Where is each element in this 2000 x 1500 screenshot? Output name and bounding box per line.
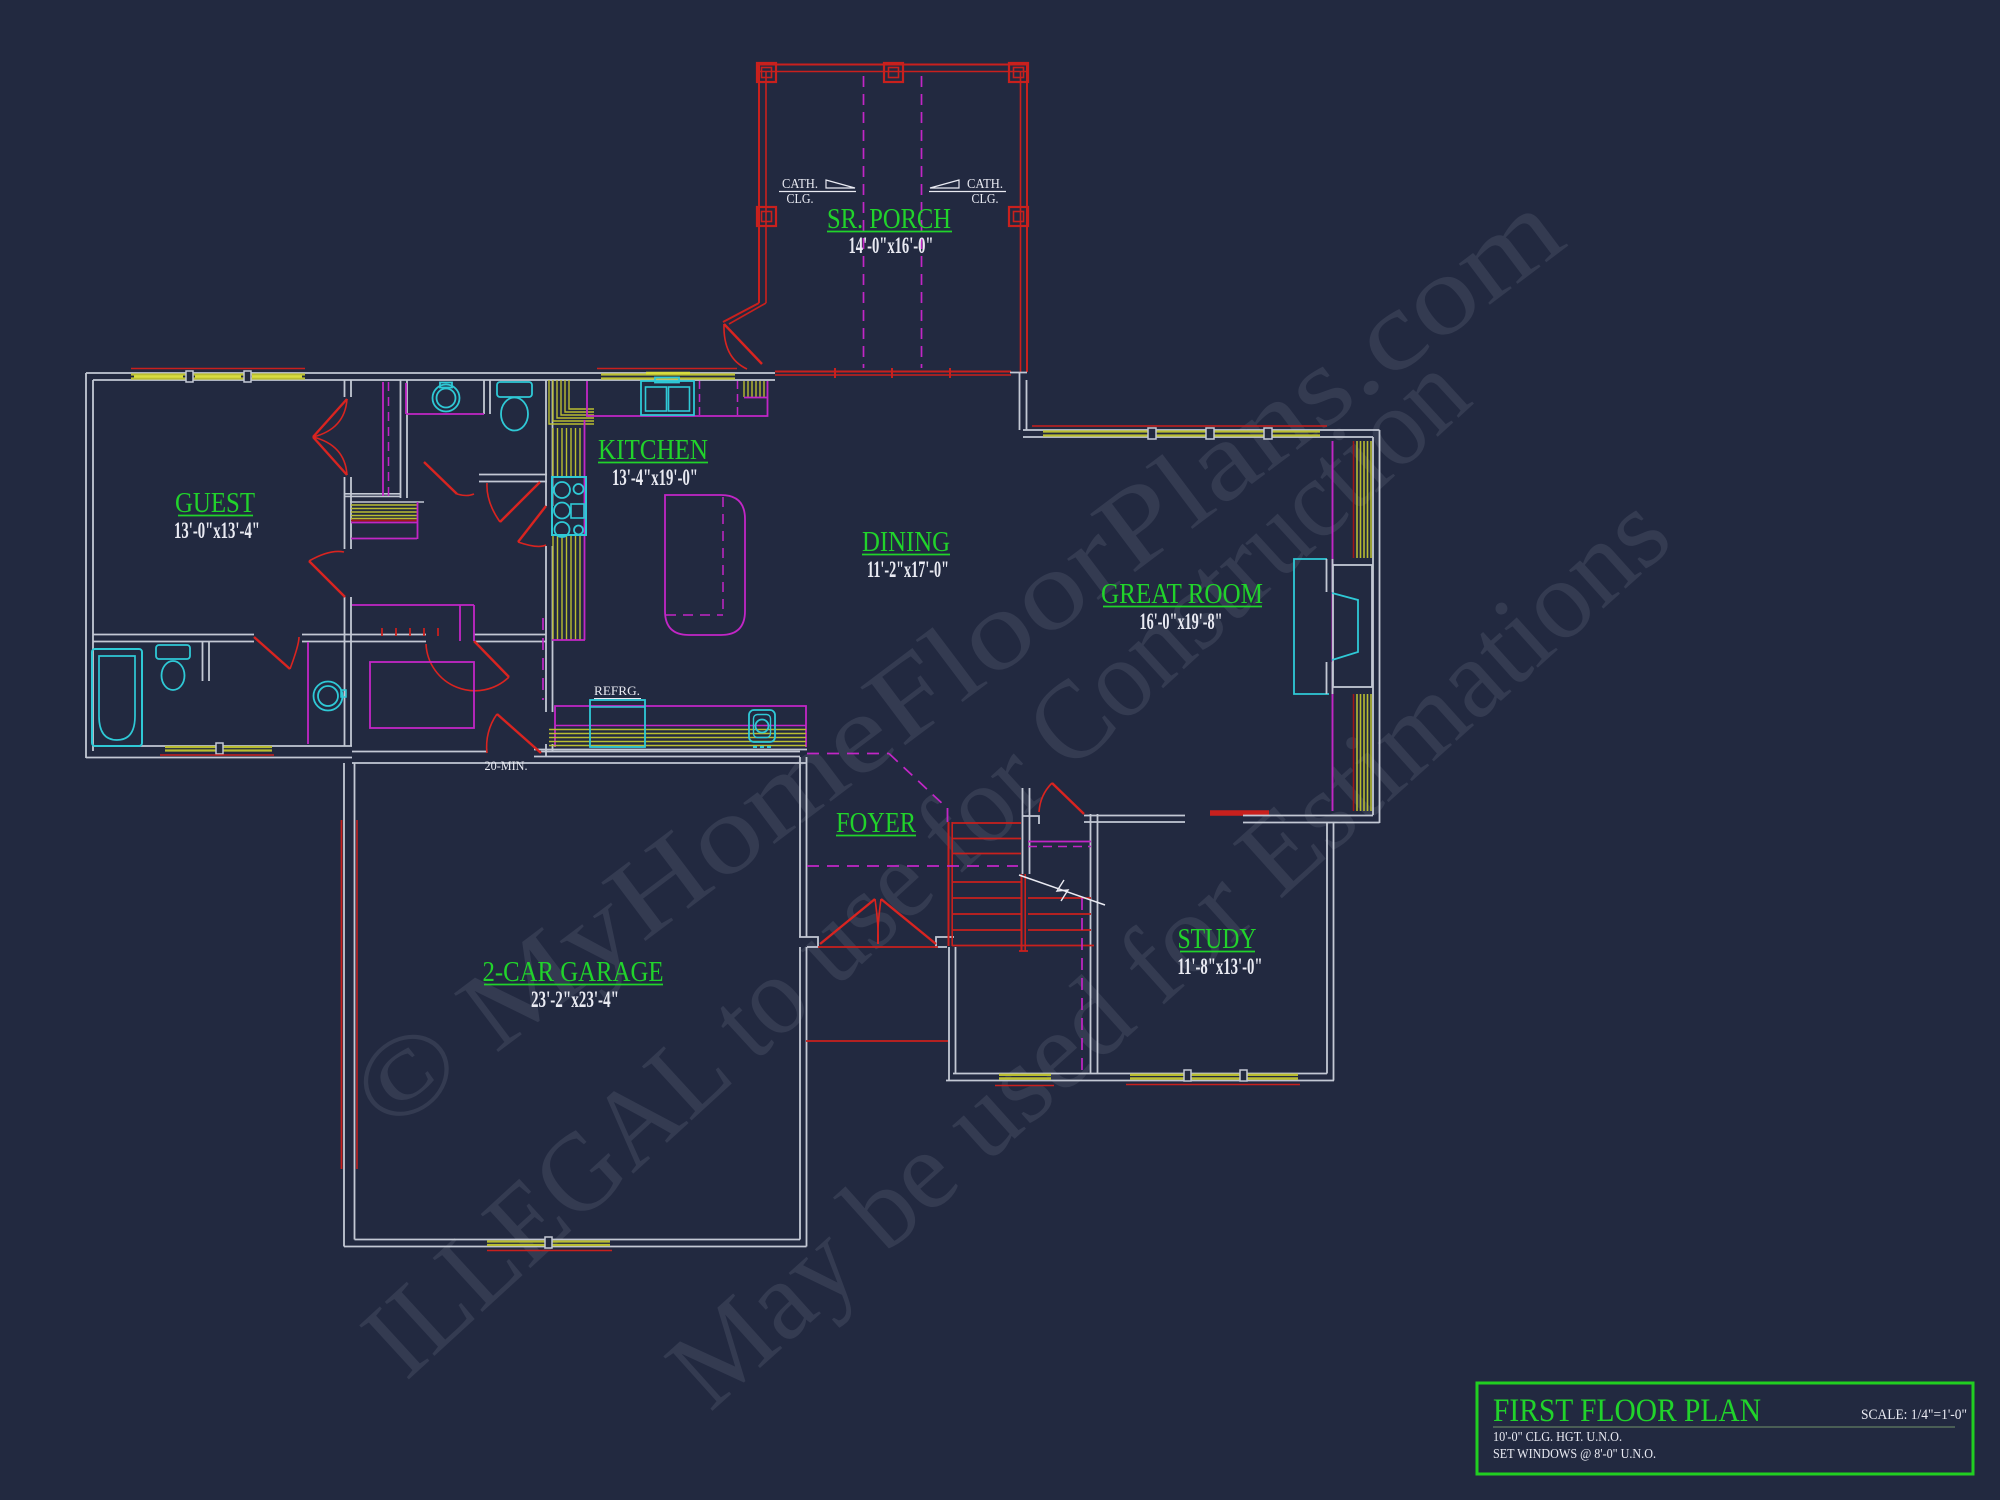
svg-text:14'-0"x16'-0": 14'-0"x16'-0" [849,233,934,258]
svg-text:CLG.: CLG. [972,191,999,206]
svg-text:SET WINDOWS @ 8'-0" U.N.O.: SET WINDOWS @ 8'-0" U.N.O. [1493,1447,1656,1462]
svg-text:16'-0"x19'-8": 16'-0"x19'-8" [1140,609,1223,634]
svg-text:20-MIN.: 20-MIN. [485,759,528,773]
svg-text:10'-0" CLG. HGT. U.N.O.: 10'-0" CLG. HGT. U.N.O. [1493,1430,1622,1445]
svg-text:STUDY: STUDY [1178,924,1257,955]
svg-text:SCALE: 1/4"=1'-0": SCALE: 1/4"=1'-0" [1861,1407,1967,1423]
svg-text:13'-0"x13'-4": 13'-0"x13'-4" [174,518,260,543]
svg-text:FIRST FLOOR PLAN: FIRST FLOOR PLAN [1493,1393,1761,1429]
svg-text:2-CAR GARAGE: 2-CAR GARAGE [483,957,664,988]
svg-text:FOYER: FOYER [836,808,916,839]
svg-text:13'-4"x19'-0": 13'-4"x19'-0" [612,465,698,490]
svg-text:SR. PORCH: SR. PORCH [827,204,951,235]
svg-text:23'-2"x23'-4": 23'-2"x23'-4" [531,987,619,1012]
svg-text:GREAT ROOM: GREAT ROOM [1101,579,1263,610]
svg-text:DINING: DINING [862,527,950,558]
svg-text:CLG.: CLG. [787,191,814,206]
svg-text:KITCHEN: KITCHEN [598,435,708,466]
svg-text:GUEST: GUEST [175,488,255,519]
svg-text:11'-2"x17'-0": 11'-2"x17'-0" [867,557,949,582]
svg-text:CATH.: CATH. [967,176,1003,191]
svg-text:REFRG.: REFRG. [594,684,640,698]
svg-text:CATH.: CATH. [782,176,818,191]
svg-text:11'-8"x13'-0": 11'-8"x13'-0" [1178,954,1263,979]
